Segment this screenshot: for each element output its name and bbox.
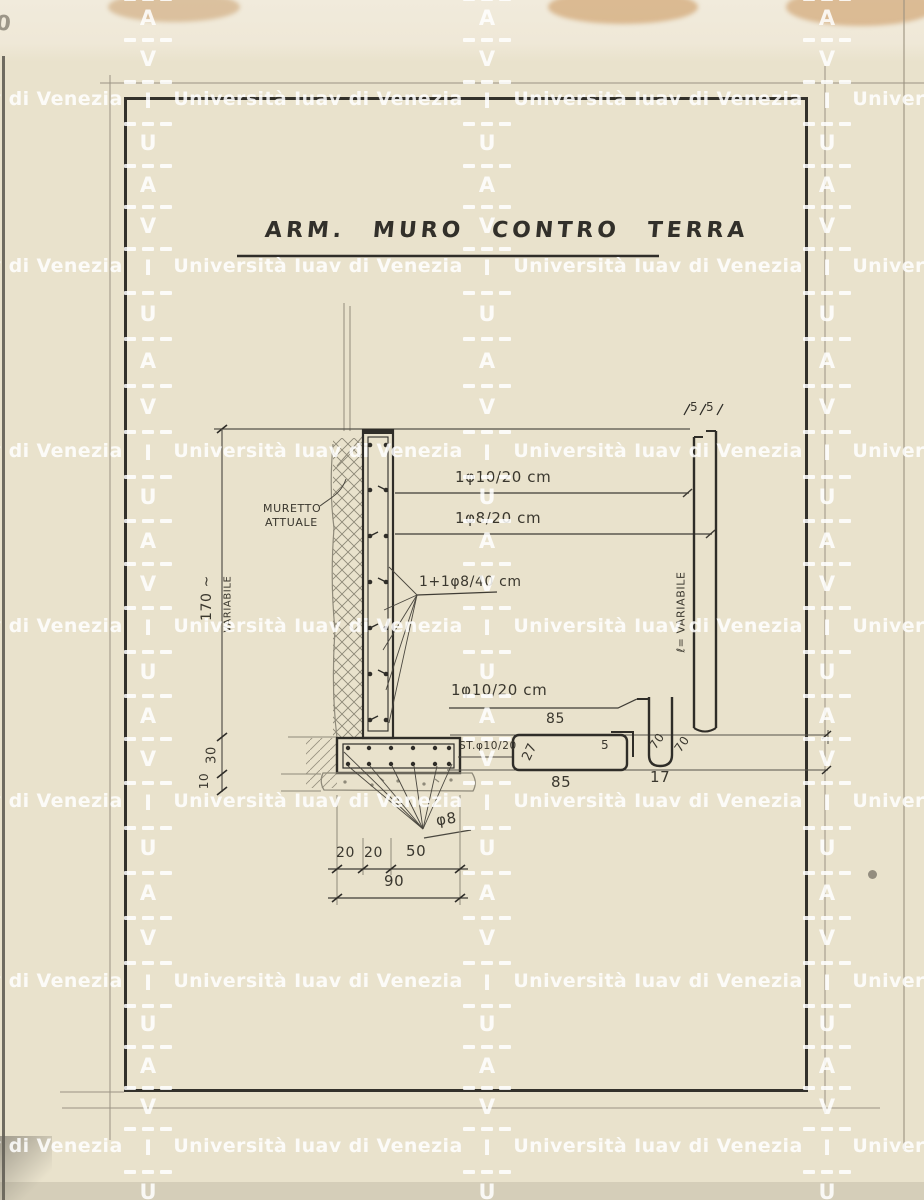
existing-wall-label: MURETTO <box>263 502 321 515</box>
footing-seg-dim: 50 <box>406 842 426 860</box>
stirrup-hook-dim: 5 <box>601 738 609 752</box>
drawing-title: ARM. MURO CONTRO TERRA <box>264 218 750 243</box>
footing-seg-dim: 20 <box>364 845 383 861</box>
drawing-linework <box>0 0 924 1200</box>
long-bar-hook-dim: 5 <box>690 400 698 414</box>
footing-seg-dim: 20 <box>336 845 355 861</box>
scan-right-edge <box>903 0 905 1150</box>
rebar-annotation-lines <box>395 489 715 708</box>
lean-height-dim: 10 <box>197 773 211 789</box>
rebar-note-footing-bottom: 1φ10/20 cm <box>451 681 547 699</box>
wall-rebar-dots <box>368 443 389 723</box>
reference-lines <box>447 730 831 774</box>
rebar-note-vertical-inner: 1φ8/20 cm <box>455 509 541 527</box>
long-bar-length-note: ℓ= VARIABILE <box>675 571 688 652</box>
stirrup-note: ST.φ10/20 <box>459 740 517 752</box>
u-bar-width-dim: 17 <box>650 768 670 786</box>
stirrup-width-bottom-dim: 85 <box>551 773 571 791</box>
footing-total-dim: 90 <box>384 872 404 890</box>
long-vertical-bar <box>684 404 723 732</box>
scan-bottom-shade <box>0 1182 924 1200</box>
rebar-note-horizontal: 1+1φ8/40 cm <box>419 574 522 590</box>
existing-wall-label: ATTUALE <box>265 516 318 529</box>
long-bar-hook-dim: 5 <box>706 400 714 414</box>
existing-wall-hatch <box>306 436 363 788</box>
footing-height-dim: 30 <box>205 746 220 764</box>
wall-continuation-pencil <box>344 303 350 431</box>
lean-concrete-layer <box>321 773 475 791</box>
scanned-drawing-sheet: 07735-008 <box>0 0 924 1200</box>
top-level-line <box>214 425 690 433</box>
wall-height-dim: 170 ~ <box>199 575 215 621</box>
footing-section <box>337 738 460 773</box>
footing-rebar-dots <box>346 746 451 766</box>
rebar-note-vertical-outer: 1φ10/20 cm <box>455 468 551 486</box>
footing-bars-diameter-note: φ8 <box>435 809 458 830</box>
wall-height-note: VARIABILE <box>223 576 234 633</box>
scan-left-edge <box>2 56 5 1200</box>
stirrup-width-top-dim: 85 <box>546 711 565 727</box>
wall-section <box>362 430 394 738</box>
